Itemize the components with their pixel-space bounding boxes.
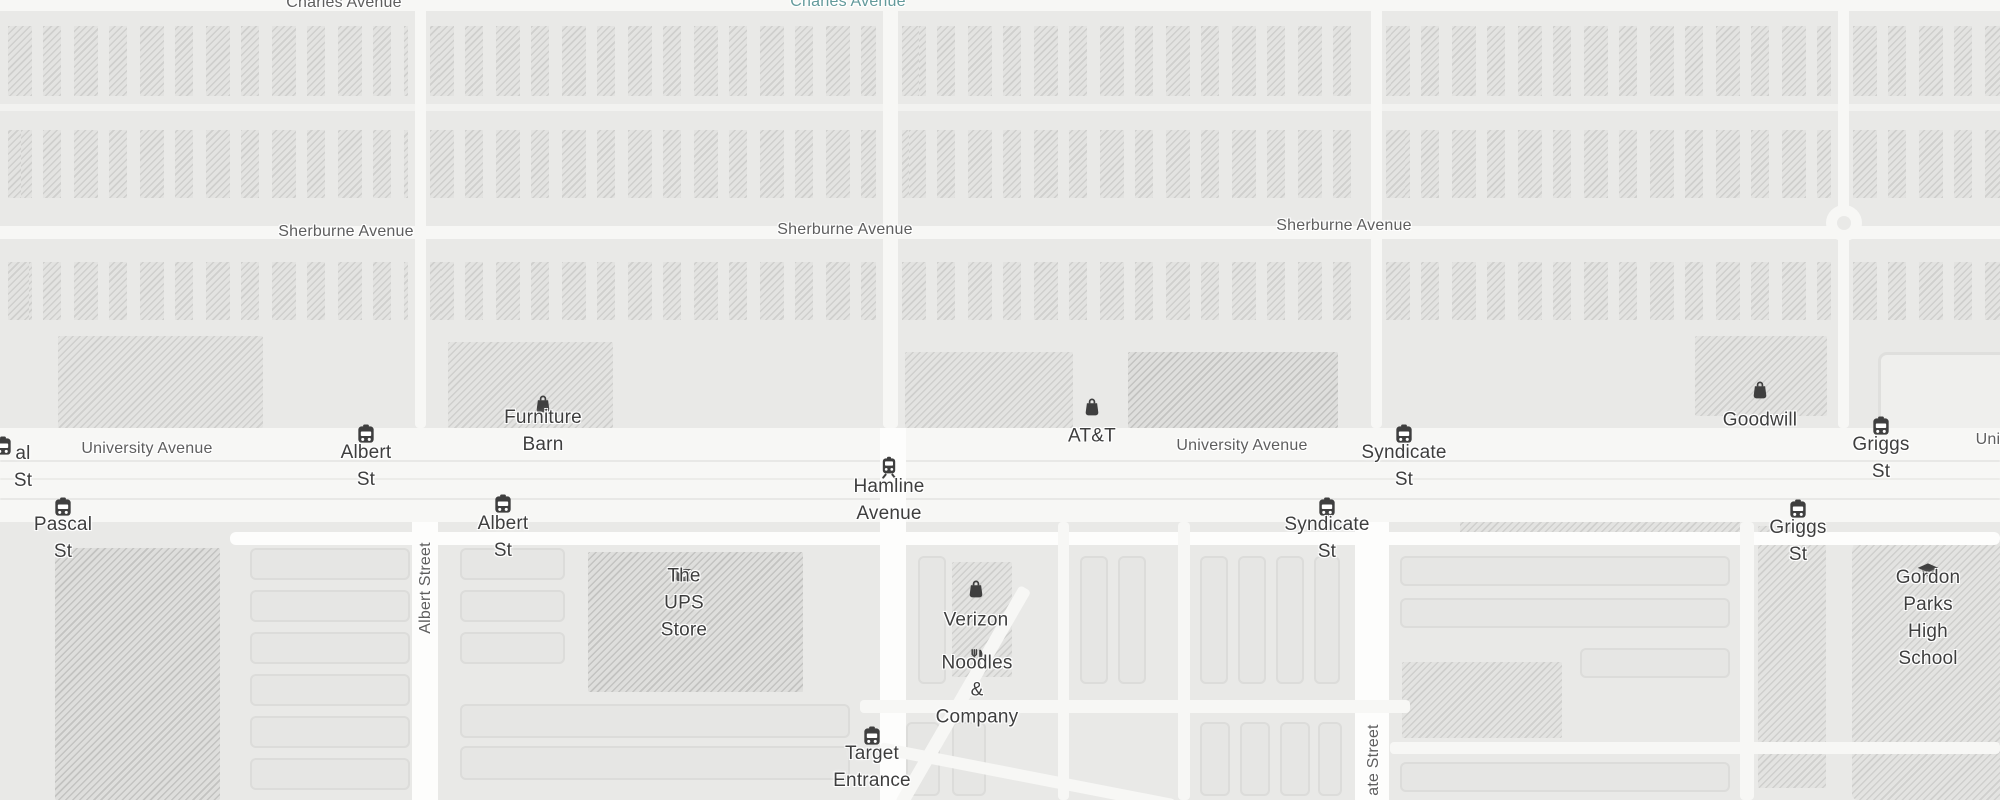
marker-label: Syndicate St — [1361, 439, 1446, 493]
marker-label: Pascal St — [34, 511, 92, 565]
marker-label: AT&T — [1068, 423, 1116, 450]
map-canvas[interactable]: Charles AvenueCharles AvenueSherburne Av… — [0, 0, 2000, 800]
marker-label: The UPS Store — [661, 563, 707, 644]
marker-label: Noodles & Company — [936, 650, 1019, 731]
marker-label: Verizon — [944, 607, 1009, 634]
marker-label: Albert St — [341, 439, 392, 493]
marker-label: Albert St — [478, 510, 529, 564]
markers-layer: al St Albert St Syndicate St Griggs St P… — [0, 0, 2000, 800]
marker-label: Hamline Avenue — [853, 473, 924, 527]
shopping-bag-icon — [1080, 395, 1104, 419]
marker-label: Goodwill — [1723, 407, 1797, 434]
marker-label: Griggs St — [1852, 431, 1909, 485]
marker-label: Gordon Parks High School — [1896, 564, 1961, 672]
marker-label: Griggs St — [1769, 514, 1826, 568]
bus-icon — [0, 436, 15, 459]
shopping-bag-icon — [964, 577, 988, 601]
marker-label: Target Entrance — [833, 740, 911, 794]
marker-label: Furniture Barn — [504, 404, 582, 458]
marker-label: al St — [14, 440, 32, 494]
shopping-bag-icon — [1748, 378, 1772, 402]
marker-label: Syndicate St — [1284, 511, 1369, 565]
